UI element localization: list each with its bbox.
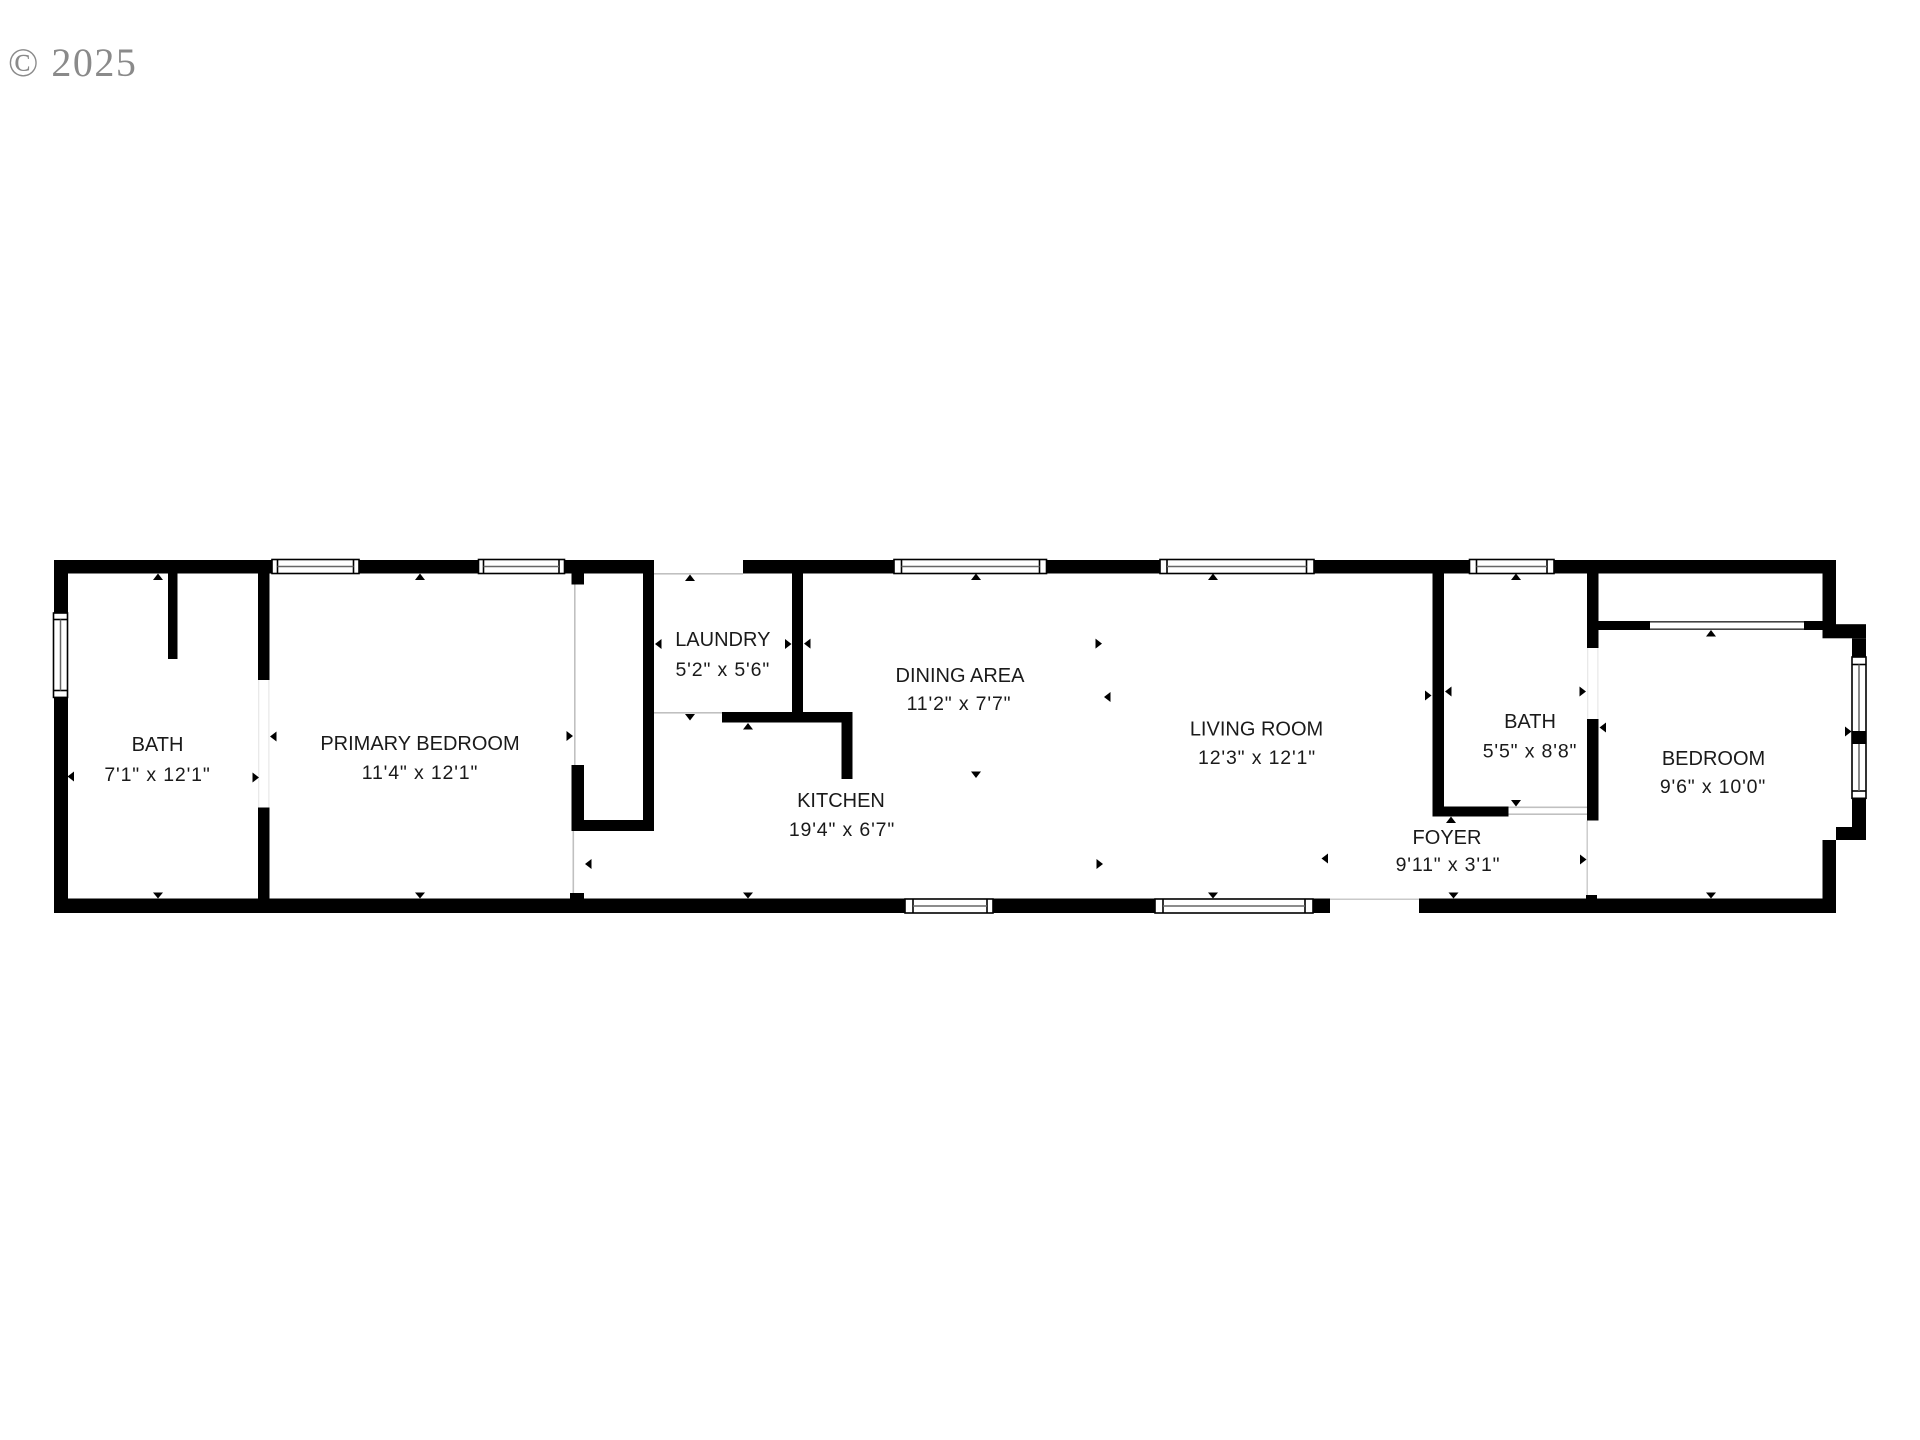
- svg-text:5'2" x 5'6": 5'2" x 5'6": [675, 659, 770, 681]
- svg-text:FOYER: FOYER: [1413, 827, 1482, 849]
- svg-text:9'6" x 10'0": 9'6" x 10'0": [1660, 776, 1766, 798]
- svg-text:BEDROOM: BEDROOM: [1662, 748, 1765, 770]
- svg-text:7'1" x 12'1": 7'1" x 12'1": [104, 764, 210, 786]
- svg-text:DINING AREA: DINING AREA: [896, 665, 1026, 687]
- svg-text:5'5" x 8'8": 5'5" x 8'8": [1483, 741, 1578, 763]
- svg-text:11'2" x 7'7": 11'2" x 7'7": [907, 693, 1012, 715]
- svg-text:© 2025: © 2025: [8, 40, 137, 85]
- svg-text:LIVING ROOM: LIVING ROOM: [1190, 719, 1323, 741]
- svg-text:KITCHEN: KITCHEN: [797, 790, 885, 812]
- svg-text:9'11" x 3'1": 9'11" x 3'1": [1396, 854, 1501, 876]
- svg-text:LAUNDRY: LAUNDRY: [675, 629, 770, 651]
- svg-text:19'4" x 6'7": 19'4" x 6'7": [789, 819, 895, 841]
- svg-text:12'3" x 12'1": 12'3" x 12'1": [1198, 747, 1316, 769]
- svg-text:PRIMARY BEDROOM: PRIMARY BEDROOM: [320, 733, 519, 755]
- svg-text:BATH: BATH: [132, 734, 184, 756]
- svg-text:11'4" x 12'1": 11'4" x 12'1": [362, 762, 479, 784]
- svg-text:BATH: BATH: [1504, 711, 1556, 733]
